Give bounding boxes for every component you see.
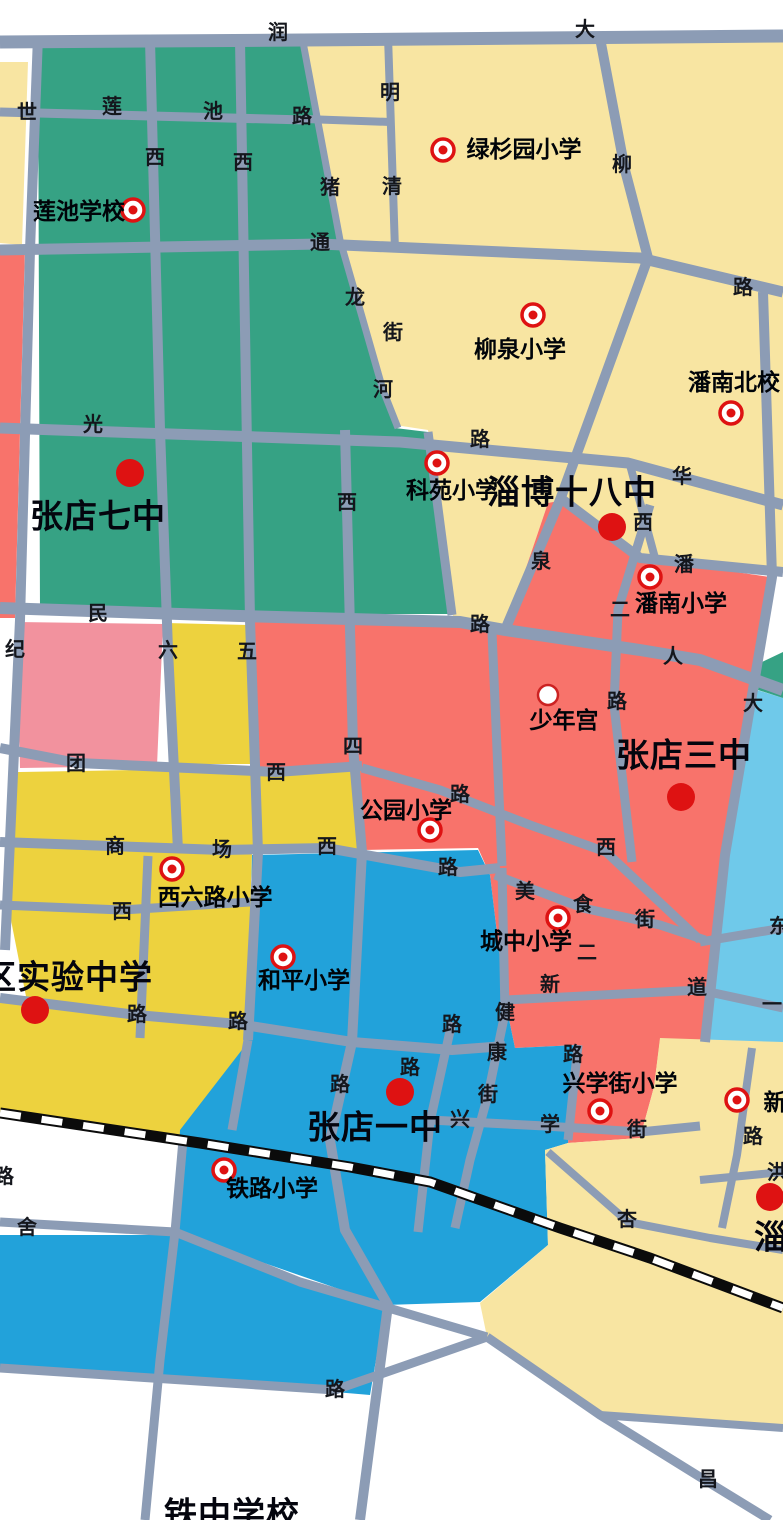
- road-label: 路: [733, 275, 754, 299]
- road-label: 河: [373, 378, 393, 401]
- road-label: 西: [266, 762, 286, 784]
- key-school-dot-marker-icon: [21, 996, 49, 1024]
- school-label-gongyuan-primary: 公园小学: [360, 797, 452, 823]
- road-label: 路: [442, 1012, 463, 1036]
- road-label: 西: [233, 152, 253, 174]
- white-dot-marker-icon: [538, 685, 558, 705]
- road-label: 新: [540, 972, 560, 996]
- road-label: 民: [88, 603, 108, 625]
- road-label: 路: [563, 1042, 584, 1066]
- school-ring-center-dot: [554, 914, 563, 923]
- key-school-dot-marker-icon: [667, 783, 695, 811]
- school-label-zhangdian-no1-middle: 张店一中: [307, 1109, 443, 1146]
- road-label: 路: [292, 104, 313, 128]
- road-label: 猪: [320, 175, 340, 199]
- road-label: 路: [470, 427, 491, 451]
- road-label: 食: [573, 892, 594, 916]
- road-label: 潘: [674, 552, 695, 576]
- road-label: 莲: [102, 94, 122, 118]
- road-label: 纪: [5, 637, 25, 661]
- road-label: 柳: [612, 152, 632, 176]
- road-label: 道: [687, 975, 707, 999]
- road-label: 杏: [616, 1208, 637, 1231]
- school-ring-center-dot: [220, 1166, 229, 1175]
- school-ring-center-dot: [279, 953, 288, 962]
- road-label: 路: [325, 1377, 346, 1401]
- zone-cream-topleft: [0, 62, 28, 245]
- road-label: 健: [495, 1000, 515, 1024]
- school-ring-center-dot: [733, 1096, 742, 1105]
- school-ring-center-dot: [727, 409, 736, 418]
- school-label-youth-palace: 少年宫: [529, 707, 599, 733]
- school-label-pannan-north-school: 潘南北校: [688, 369, 781, 395]
- school-label-xingxuejie-primary: 兴学街小学: [563, 1070, 678, 1096]
- road-label: 二: [610, 599, 630, 621]
- road-label: 西: [596, 837, 616, 859]
- key-school-dot-marker-icon: [756, 1183, 783, 1211]
- key-school-dot-marker-icon: [386, 1078, 414, 1106]
- school-label-district-experimental-middle: 区实验中学: [0, 959, 153, 996]
- road-label: 龙: [345, 285, 365, 309]
- road-label: 路: [330, 1072, 351, 1096]
- road-label: 洪: [767, 1161, 783, 1184]
- road-label: 昌: [698, 1468, 718, 1491]
- road-label: 世: [17, 101, 37, 124]
- school-label-liuquan-primary: 柳泉小学: [474, 336, 566, 362]
- school-ring-center-dot: [439, 146, 448, 155]
- road-label: 泉: [530, 549, 552, 573]
- road-label: 清: [382, 174, 402, 198]
- road-label: 大: [743, 692, 763, 715]
- road-label: 路: [607, 689, 628, 713]
- school-district-map: 润大世莲池路明西西猪清柳通路龙街河光路华西西泉潘二路民人纪六五路大团四西路商场西…: [0, 0, 783, 1520]
- road-label: 池: [203, 100, 223, 123]
- road-label: 美: [515, 879, 536, 903]
- road-label: 路: [743, 1124, 764, 1148]
- school-lianchi-school: 莲池学校: [33, 198, 144, 224]
- road-label: 明: [380, 81, 400, 104]
- school-tiezhong-school-partial: 铁中学校: [164, 1496, 300, 1520]
- road-label: 街: [382, 320, 403, 344]
- road-label: 舍: [17, 1215, 38, 1239]
- school-label-zhangdian-no7-middle: 张店七中: [30, 498, 166, 535]
- school-label-xiliulu-primary: 西六路小学: [158, 884, 273, 910]
- road-label: 西: [112, 901, 132, 923]
- road-label: 街: [634, 907, 655, 931]
- school-ring-center-dot: [596, 1107, 605, 1116]
- road-label: 西: [633, 512, 653, 534]
- road-label: 光: [82, 413, 103, 436]
- road-label: 西: [145, 147, 165, 169]
- road-label: 路: [400, 1055, 421, 1079]
- road-label: 路: [228, 1009, 249, 1033]
- school-label-lvshanyuan-primary: 绿杉园小学: [467, 136, 582, 162]
- road-label: 商: [105, 834, 125, 858]
- road-label: 兴: [450, 1108, 470, 1131]
- road-label: 场: [212, 838, 232, 861]
- school-ring-center-dot: [646, 573, 655, 582]
- road-label: 街: [477, 1082, 498, 1106]
- road-label: 东: [769, 914, 783, 938]
- road-label: 六: [158, 639, 178, 662]
- road-label: 二: [577, 942, 597, 964]
- road-label: 康: [487, 1040, 508, 1064]
- road-label: 路: [0, 1164, 15, 1188]
- school-label-pannan-primary: 潘南小学: [635, 590, 727, 616]
- road-label: 通: [310, 231, 330, 254]
- school-label-chengzhong-primary: 城中小学: [480, 928, 572, 954]
- road-label: 路: [450, 782, 471, 806]
- road-label: 润: [268, 20, 288, 44]
- school-label-tiezhong-school-partial: 铁中学校: [164, 1496, 300, 1520]
- school-ring-center-dot: [433, 459, 442, 468]
- road-label: 四: [343, 736, 363, 758]
- zone-pink-block: [17, 622, 163, 768]
- road-label: 西: [317, 836, 337, 858]
- road-label: 华: [672, 464, 692, 488]
- school-zibo-school-partial: 淄: [754, 1183, 783, 1256]
- school-label-zibo-school-partial: 淄: [754, 1219, 783, 1256]
- school-label-zhangdian-no3-middle: 张店三中: [616, 737, 752, 774]
- school-label-keyuan-primary: 科苑小学: [406, 477, 498, 503]
- school-label-lianchi-school: 莲池学校: [33, 198, 126, 224]
- school-label-tielu-primary: 铁路小学: [226, 1175, 318, 1201]
- road-label: 路: [127, 1002, 148, 1026]
- school-label-zibo-no18-middle: 淄博十八中: [487, 474, 657, 511]
- school-ring-center-dot: [426, 826, 435, 835]
- road-label: 人: [663, 645, 684, 668]
- road-label: 路: [470, 612, 491, 636]
- road-label: 五: [237, 641, 257, 663]
- school-ring-center-dot: [129, 206, 138, 215]
- road-label: 学: [540, 1112, 560, 1136]
- school-ring-center-dot: [168, 865, 177, 874]
- road-label: 一: [762, 994, 782, 1016]
- road-label: 西: [337, 492, 357, 514]
- road-label: 团: [66, 752, 86, 775]
- road-label: 路: [438, 855, 459, 879]
- key-school-dot-marker-icon: [116, 459, 144, 487]
- school-label-heping-primary: 和平小学: [258, 967, 350, 993]
- road-label: 街: [626, 1117, 647, 1141]
- key-school-dot-marker-icon: [598, 513, 626, 541]
- map-canvas: 润大世莲池路明西西猪清柳通路龙街河光路华西西泉潘二路民人纪六五路大团四西路商场西…: [0, 0, 783, 1520]
- school-label-xin-school-partial: 新: [764, 1089, 783, 1115]
- road-label: 大: [575, 18, 595, 41]
- school-ring-center-dot: [529, 311, 538, 320]
